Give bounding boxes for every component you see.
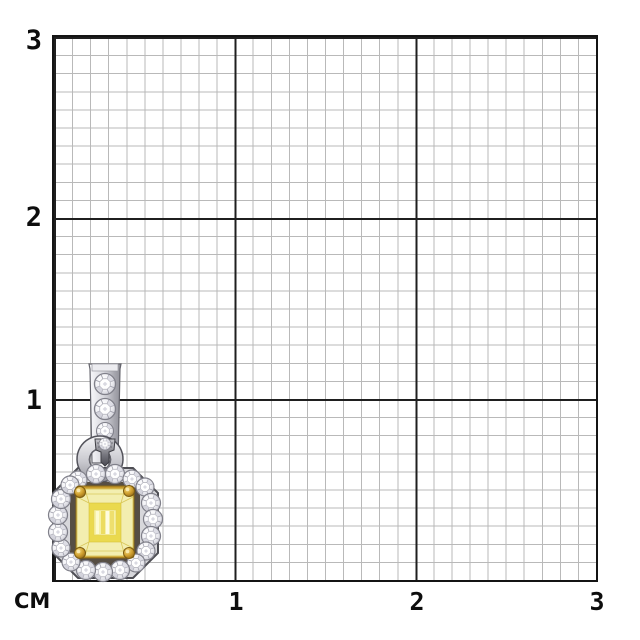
- bail-diamond: [99, 438, 111, 450]
- halo-diamond: [49, 523, 68, 542]
- y-axis-tick-1: 1: [16, 387, 42, 414]
- pendant-image: [40, 355, 165, 583]
- ruler-sheet: 3 2 1 1 2 3 СМ: [0, 0, 640, 640]
- x-axis-tick-3: 3: [584, 589, 610, 615]
- y-axis-tick-3: 3: [16, 27, 42, 54]
- halo-diamond: [87, 465, 106, 484]
- x-axis-tick-2: 2: [404, 589, 430, 615]
- y-axis-tick-2: 2: [16, 204, 42, 231]
- halo-diamond: [52, 539, 70, 557]
- bail-diamond: [95, 399, 116, 420]
- pendant-center-stone: [75, 486, 135, 559]
- halo-diamond: [106, 465, 125, 484]
- unit-label-cm: СМ: [14, 589, 50, 613]
- halo-diamond: [144, 510, 163, 529]
- halo-diamond: [111, 561, 130, 580]
- x-axis-tick-1: 1: [223, 589, 249, 615]
- bail-diamond: [95, 374, 116, 395]
- halo-diamond: [94, 563, 113, 582]
